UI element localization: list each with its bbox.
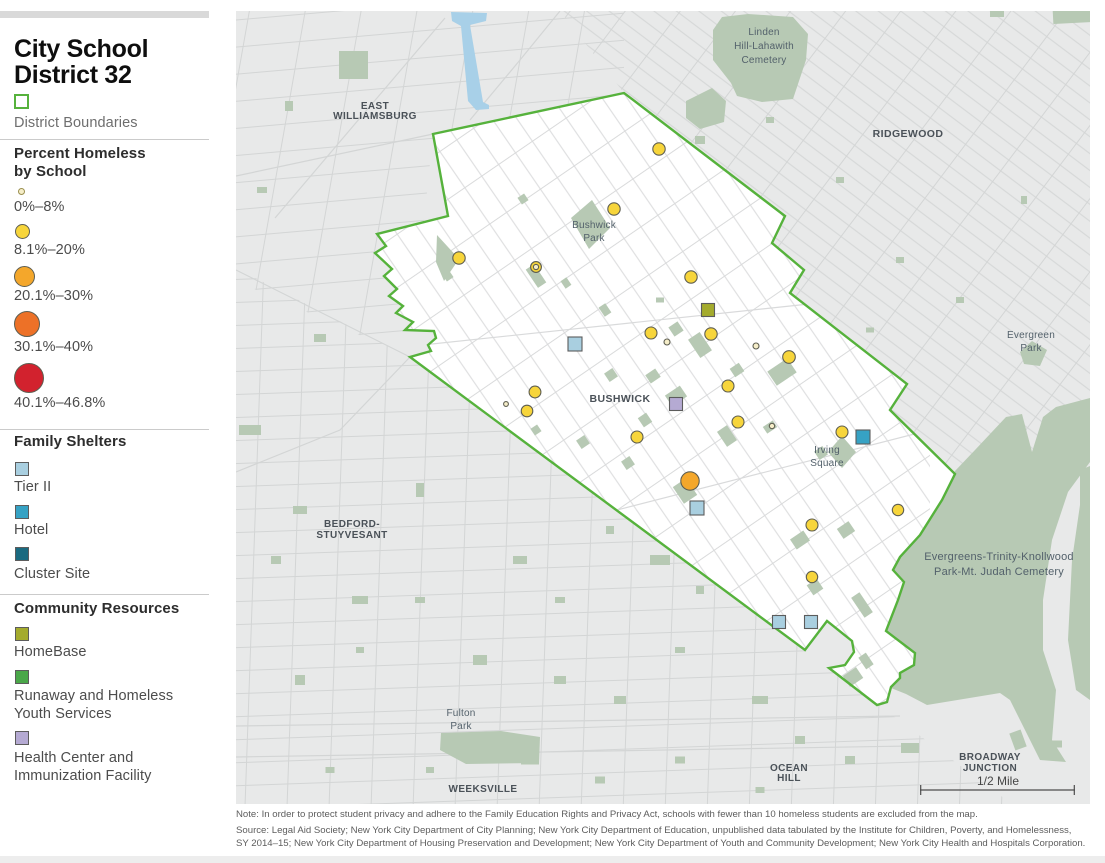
svg-text:Park-Mt. Judah Cemetery: Park-Mt. Judah Cemetery — [934, 566, 1064, 578]
svg-text:Linden: Linden — [748, 27, 779, 38]
svg-text:BEDFORD-: BEDFORD- — [324, 519, 380, 530]
svg-text:RIDGEWOOD: RIDGEWOOD — [873, 128, 944, 140]
svg-text:Evergreens-Trinity-Knollwood: Evergreens-Trinity-Knollwood — [924, 551, 1073, 563]
svg-text:Bushwick: Bushwick — [572, 220, 617, 231]
svg-text:Park: Park — [450, 721, 472, 732]
svg-text:Square: Square — [810, 458, 844, 469]
svg-text:Cemetery: Cemetery — [742, 55, 787, 66]
svg-text:HILL: HILL — [777, 773, 801, 784]
svg-text:Hill-Lahawith: Hill-Lahawith — [734, 41, 794, 52]
svg-text:JUNCTION: JUNCTION — [963, 763, 1017, 774]
svg-text:Evergreen: Evergreen — [1007, 330, 1055, 341]
svg-text:Fulton: Fulton — [447, 708, 476, 719]
svg-text:1/2 Mile: 1/2 Mile — [977, 774, 1019, 788]
svg-text:WEEKSVILLE: WEEKSVILLE — [448, 784, 517, 795]
svg-text:Irving: Irving — [814, 445, 840, 456]
svg-text:Park: Park — [583, 233, 605, 244]
svg-text:STUYVESANT: STUYVESANT — [316, 530, 387, 541]
svg-text:Park: Park — [1020, 343, 1042, 354]
svg-text:BROADWAY: BROADWAY — [959, 752, 1021, 763]
svg-text:BUSHWICK: BUSHWICK — [590, 393, 651, 405]
svg-text:WILLIAMSBURG: WILLIAMSBURG — [333, 111, 417, 122]
